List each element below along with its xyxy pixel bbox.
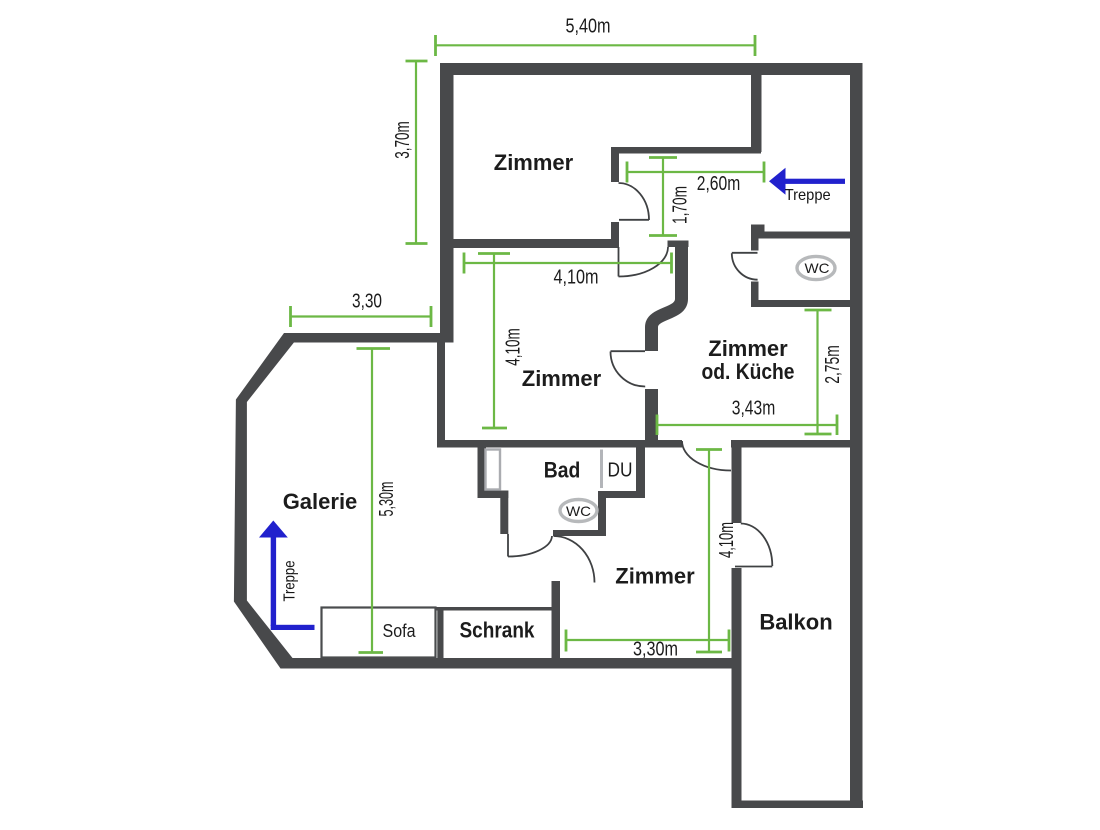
svg-text:Galerie: Galerie [283, 489, 358, 514]
svg-text:Zimmer: Zimmer [494, 150, 574, 175]
svg-text:Zimmer: Zimmer [708, 336, 788, 361]
svg-text:Balkon: Balkon [759, 610, 832, 635]
svg-text:3,43m: 3,43m [732, 398, 776, 420]
svg-text:Zimmer: Zimmer [522, 366, 602, 391]
svg-text:5,40m: 5,40m [566, 16, 611, 38]
svg-text:WC: WC [805, 260, 830, 276]
svg-text:1,70m: 1,70m [670, 186, 692, 224]
svg-text:5,30m: 5,30m [376, 482, 398, 517]
svg-text:4,10m: 4,10m [554, 267, 599, 289]
svg-text:3,70m: 3,70m [392, 121, 414, 159]
svg-text:Sofa: Sofa [383, 621, 417, 641]
svg-text:od. Küche: od. Küche [702, 359, 795, 384]
svg-text:4,10m: 4,10m [503, 328, 525, 366]
svg-text:2,60m: 2,60m [697, 173, 741, 195]
svg-text:Zimmer: Zimmer [615, 564, 695, 589]
svg-text:Treppe: Treppe [282, 560, 299, 601]
svg-text:Bad: Bad [544, 458, 581, 483]
svg-text:DU: DU [608, 460, 633, 482]
svg-text:Schrank: Schrank [460, 618, 536, 643]
svg-text:WC: WC [566, 503, 591, 519]
svg-text:3,30: 3,30 [352, 291, 382, 313]
svg-text:4,10m: 4,10m [716, 522, 738, 558]
svg-text:2,75m: 2,75m [822, 345, 844, 384]
svg-text:3,30m: 3,30m [633, 639, 678, 661]
svg-text:Treppe: Treppe [785, 187, 831, 204]
